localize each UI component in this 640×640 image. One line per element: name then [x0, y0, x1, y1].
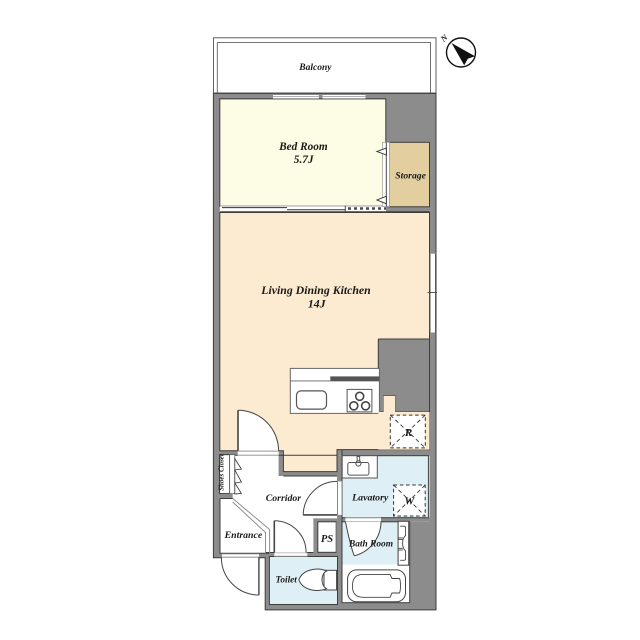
svg-text:Corridor: Corridor — [266, 493, 302, 504]
svg-text:Storage: Storage — [395, 170, 426, 181]
svg-text:Lavatory: Lavatory — [351, 493, 389, 504]
svg-text:Balcony: Balcony — [298, 63, 332, 73]
svg-text:Toilet: Toilet — [276, 575, 298, 585]
svg-text:5.7J: 5.7J — [294, 154, 314, 166]
svg-text:W: W — [405, 496, 416, 508]
svg-text:Bath Room: Bath Room — [348, 540, 393, 550]
svg-text:Bed Room: Bed Room — [278, 141, 328, 153]
svg-text:Living Dining Kitchen: Living Dining Kitchen — [260, 283, 370, 297]
svg-text:PS: PS — [321, 534, 333, 545]
svg-text:Shoes Closet: Shoes Closet — [217, 453, 225, 491]
svg-text:Entrance: Entrance — [224, 530, 263, 541]
svg-text:R: R — [404, 427, 412, 439]
svg-text:14J: 14J — [308, 297, 327, 311]
